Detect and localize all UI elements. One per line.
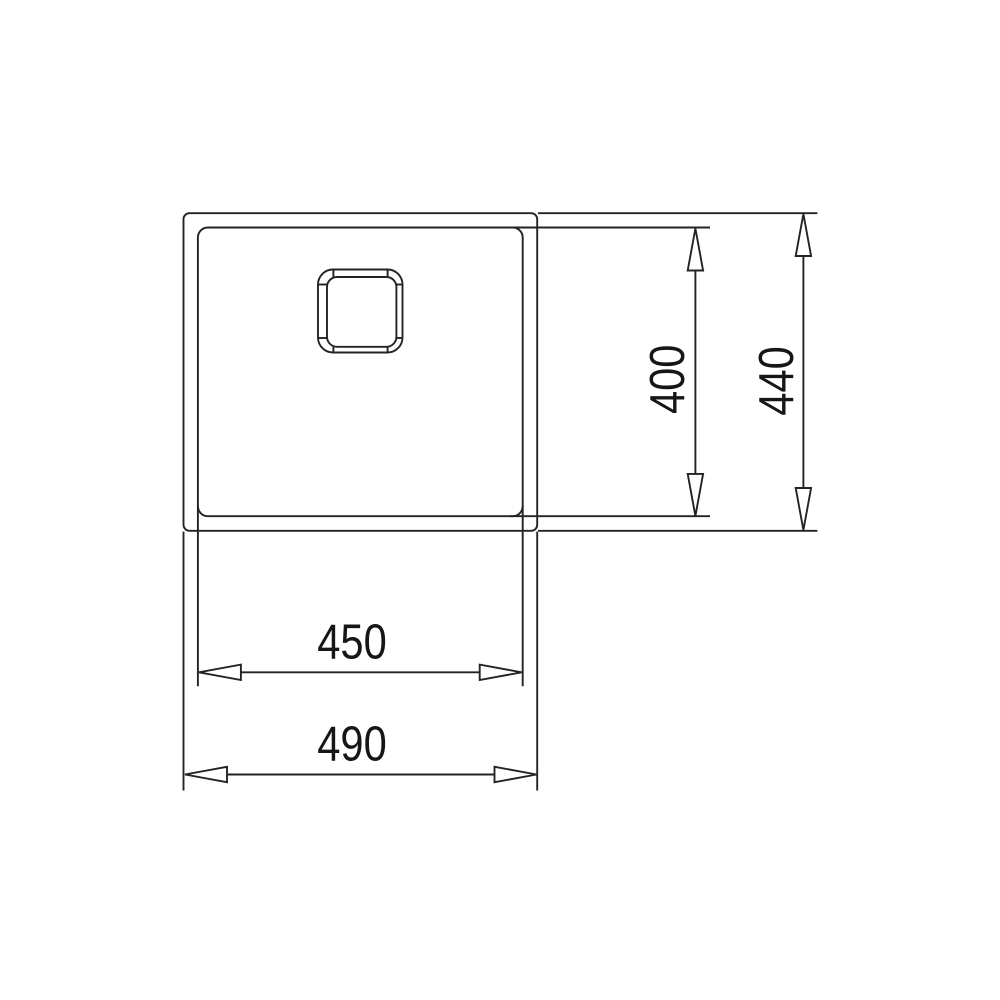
svg-text:450: 450 xyxy=(317,615,386,670)
svg-text:490: 490 xyxy=(317,717,386,772)
svg-text:400: 400 xyxy=(640,345,695,414)
svg-text:440: 440 xyxy=(749,346,804,415)
